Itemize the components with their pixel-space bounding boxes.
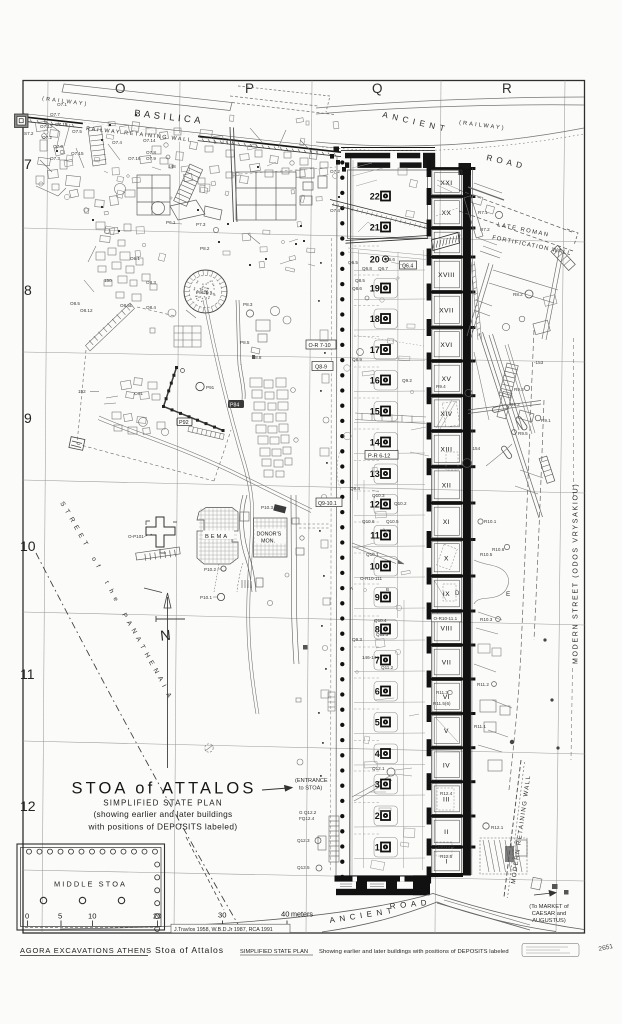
svg-text:16: 16 [370,375,380,385]
svg-text:CAESAR and: CAESAR and [532,911,566,917]
svg-text:12: 12 [20,798,36,814]
svg-text:R11.2: R11.2 [477,682,489,687]
svg-text:Q10.6: Q10.6 [362,519,375,524]
svg-text:2: 2 [375,811,380,821]
svg-text:Stoa of Attalos: Stoa of Attalos [155,945,224,955]
svg-text:MODERN STREET (ODOS VRYSAKIOU): MODERN STREET (ODOS VRYSAKIOU) [573,483,580,664]
svg-text:P91: P91 [206,385,215,390]
svg-text:XV: XV [442,376,452,383]
svg-text:1: 1 [375,842,380,852]
svg-text:AUGUSTUS): AUGUSTUS) [532,918,566,924]
svg-text:R8.2: R8.2 [513,292,523,297]
svg-text:MIDDLE STOA: MIDDLE STOA [54,880,127,889]
svg-text:P10.3: P10.3 [261,505,273,510]
svg-text:I: I [445,859,447,866]
svg-text:O7.6: O7.6 [53,144,63,149]
svg-text:O8.4: O8.4 [146,305,156,310]
svg-text:14: 14 [370,437,380,447]
svg-text:P6.1: P6.1 [166,220,176,225]
svg-text:10: 10 [88,912,96,921]
svg-text:8: 8 [24,282,32,298]
svg-text:Q8.6: Q8.6 [352,286,362,291]
svg-text:20: 20 [153,912,161,921]
svg-text:D: D [455,591,460,597]
svg-text:Q6.6: Q6.6 [385,257,395,262]
svg-text:10: 10 [20,538,36,554]
svg-text:9: 9 [24,410,32,426]
svg-text:R10.1: R10.1 [484,519,497,524]
svg-text:O7.16: O7.16 [128,156,141,161]
svg-text:to STOA): to STOA) [299,786,322,792]
svg-text:O-P101: O-P101 [128,534,144,539]
svg-text:Q11.3: Q11.3 [376,632,389,637]
svg-text:5: 5 [375,717,380,727]
svg-text:O-R 7-10: O-R 7-10 [309,343,331,349]
svg-text:O7.12: O7.12 [40,124,53,129]
svg-text:O7.14: O7.14 [143,138,156,143]
svg-text:O7.7: O7.7 [50,112,60,117]
svg-text:7: 7 [24,156,32,172]
svg-text:SIMPLIFIED STATE PLAN: SIMPLIFIED STATE PLAN [103,799,223,808]
svg-text:G Q12.2: G Q12.2 [299,810,317,815]
svg-text:15: 15 [370,406,380,416]
svg-text:O7.4: O7.4 [330,208,340,213]
svg-text:11: 11 [370,530,380,540]
svg-text:Q11.2: Q11.2 [381,665,394,670]
svg-text:meters: meters [291,910,313,919]
svg-text:R11.5(6): R11.5(6) [433,701,451,706]
svg-text:P10.2: P10.2 [204,567,216,572]
svg-text:Q8-9: Q8-9 [315,365,327,371]
svg-text:(ENTRANCE: (ENTRANCE [295,778,328,784]
svg-text:O7.5: O7.5 [72,129,82,134]
svg-text:XI: XI [443,519,450,526]
svg-text:P84: P84 [230,403,239,409]
svg-text:P7.3: P7.3 [196,222,206,227]
svg-text:(showing earlier and later bui: (showing earlier and later buildings [93,809,232,819]
svg-text:O7.8: O7.8 [146,150,156,155]
svg-text:R9.1: R9.1 [541,418,551,423]
svg-text:12: 12 [370,499,380,509]
svg-text:II: II [444,829,449,836]
svg-text:XIII: XIII [441,447,453,454]
svg-text:19: 19 [370,283,380,293]
svg-text:STOA of ATTALOS: STOA of ATTALOS [72,780,257,798]
svg-text:P8.2: P8.2 [200,246,210,251]
svg-text:O7.9: O7.9 [146,156,156,161]
svg-text:P: P [245,81,254,96]
svg-text:with positions of DEPOSITS lab: with positions of DEPOSITS labeled) [87,822,237,832]
svg-text:P92: P92 [179,420,189,426]
svg-text:R12.5: R12.5 [440,854,453,859]
svg-text:B: B [386,587,389,592]
svg-text:R9.2: R9.2 [510,402,520,407]
svg-text:Q9-10.1: Q9-10.1 [318,501,337,507]
svg-text:XVII: XVII [439,307,453,314]
svg-text:R11.3: R11.3 [436,690,448,695]
svg-text:Q12.1: Q12.1 [372,766,385,771]
svg-text:13: 13 [370,469,380,479]
svg-text:Q8.5: Q8.5 [355,278,365,283]
svg-text:R12.1: R12.1 [491,825,504,830]
svg-text:P-R 6-12: P-R 6-12 [368,453,390,459]
svg-text:Q8.9: Q8.9 [352,357,362,362]
svg-text:6: 6 [375,686,380,696]
svg-text:Q10.2: Q10.2 [394,501,407,506]
svg-text:Q6.4: Q6.4 [402,264,413,270]
svg-text:Q: Q [372,81,383,96]
svg-text:150: 150 [104,278,112,283]
svg-text:O7.2: O7.2 [330,169,340,174]
svg-text:III: III [443,797,450,804]
svg-text:S7.2: S7.2 [24,131,34,136]
svg-text:P10.1: P10.1 [200,595,212,600]
svg-text:R: R [502,81,512,96]
svg-text:Showing earlier and later buil: Showing earlier and later buildings with… [319,949,509,955]
svg-text:152: 152 [78,389,86,394]
svg-text:XVIII: XVIII [438,272,455,279]
svg-text:P8.5: P8.5 [240,340,250,345]
svg-text:4: 4 [375,749,380,759]
svg-text:O7.2: O7.2 [42,135,52,140]
svg-text:R10.3: R10.3 [480,617,493,622]
svg-text:9: 9 [375,592,380,602]
svg-text:FQ12.4: FQ12.4 [299,816,315,821]
svg-text:Q9.3: Q9.3 [352,637,362,642]
svg-text:Q10.4: Q10.4 [374,618,387,623]
svg-text:O-R10-111: O-R10-111 [360,576,382,581]
svg-text:Q10.3: Q10.3 [372,493,385,498]
svg-text:20: 20 [370,254,380,264]
svg-text:5: 5 [58,912,62,921]
svg-text:40: 40 [281,910,289,919]
svg-text:P81.1: P81.1 [196,290,208,295]
svg-text:R7.1: R7.1 [478,210,488,215]
svg-text:O-R10-11.1: O-R10-11.1 [434,616,458,621]
svg-text:-153: -153 [534,360,544,365]
svg-text:21: 21 [370,222,380,232]
svg-text:.O91: .O91 [133,391,143,396]
svg-text:146-147: 146-147 [362,655,379,660]
svg-text:E: E [506,591,510,598]
svg-text:11: 11 [20,666,35,682]
svg-text:30: 30 [218,911,226,920]
svg-text:O8.12: O8.12 [80,308,93,313]
svg-text:Q6.8: Q6.8 [362,266,372,271]
svg-text:SIMPLIFIED STATE PLAN: SIMPLIFIED STATE PLAN [240,949,308,955]
svg-text:Q13.5: Q13.5 [297,865,310,870]
svg-text:X: X [444,555,449,562]
svg-text:VIII: VIII [441,626,453,633]
svg-text:3: 3 [375,779,380,789]
svg-text:18: 18 [370,314,380,324]
svg-text:154: 154 [473,446,481,451]
svg-text:IV: IV [443,762,450,769]
svg-text:VII: VII [442,660,452,667]
svg-text:10: 10 [370,561,380,571]
svg-text:O8.5: O8.5 [70,301,80,306]
svg-text:O8.5b: O8.5b [120,303,133,308]
svg-text:O7.13: O7.13 [55,122,68,127]
svg-text:(To MARKET of: (To MARKET of [529,904,569,910]
svg-text:O7.1: O7.1 [57,102,67,107]
svg-text:R10.5: R10.5 [480,552,493,557]
svg-text:Q12.3: Q12.3 [297,838,310,843]
svg-text:R9.5: R9.5 [518,431,528,436]
svg-text:Q10.5: Q10.5 [386,519,399,524]
svg-text:N: N [160,628,172,645]
svg-text:P8.3: P8.3 [243,302,253,307]
svg-text:O: O [115,81,126,96]
svg-text:O7.4: O7.4 [112,140,122,145]
svg-text:XVI: XVI [440,342,452,349]
svg-text:O7.3: O7.3 [50,156,60,161]
svg-text:BEMA: BEMA [205,534,229,540]
svg-text:DONOR'S: DONOR'S [257,532,282,538]
svg-text:O8.3: O8.3 [146,280,156,285]
svg-text:AGORA EXCAVATIONS ATHENS: AGORA EXCAVATIONS ATHENS [20,946,152,955]
svg-text:R12.4: R12.4 [440,791,453,796]
svg-text:Q6.5: Q6.5 [348,260,358,265]
svg-text:XII: XII [442,483,452,490]
svg-text:Q9.2: Q9.2 [402,378,412,383]
svg-text:R11.1: R11.1 [474,724,486,729]
svg-text:MON.: MON. [261,539,275,545]
svg-text:R9.4: R9.4 [436,384,446,389]
svg-text:R10.6: R10.6 [492,547,505,552]
svg-text:Q9.4: Q9.4 [350,486,360,491]
svg-text:Q6.7: Q6.7 [378,266,388,271]
svg-text:14R12.3: 14R12.3 [437,844,455,849]
svg-text:17: 17 [370,345,380,355]
svg-text:22: 22 [370,191,380,201]
svg-text:0: 0 [25,912,29,921]
svg-text:J.Travlos 1958, W.B.D.Jr 1987,: J.Travlos 1958, W.B.D.Jr 1987, RCA 1991 [174,927,273,933]
